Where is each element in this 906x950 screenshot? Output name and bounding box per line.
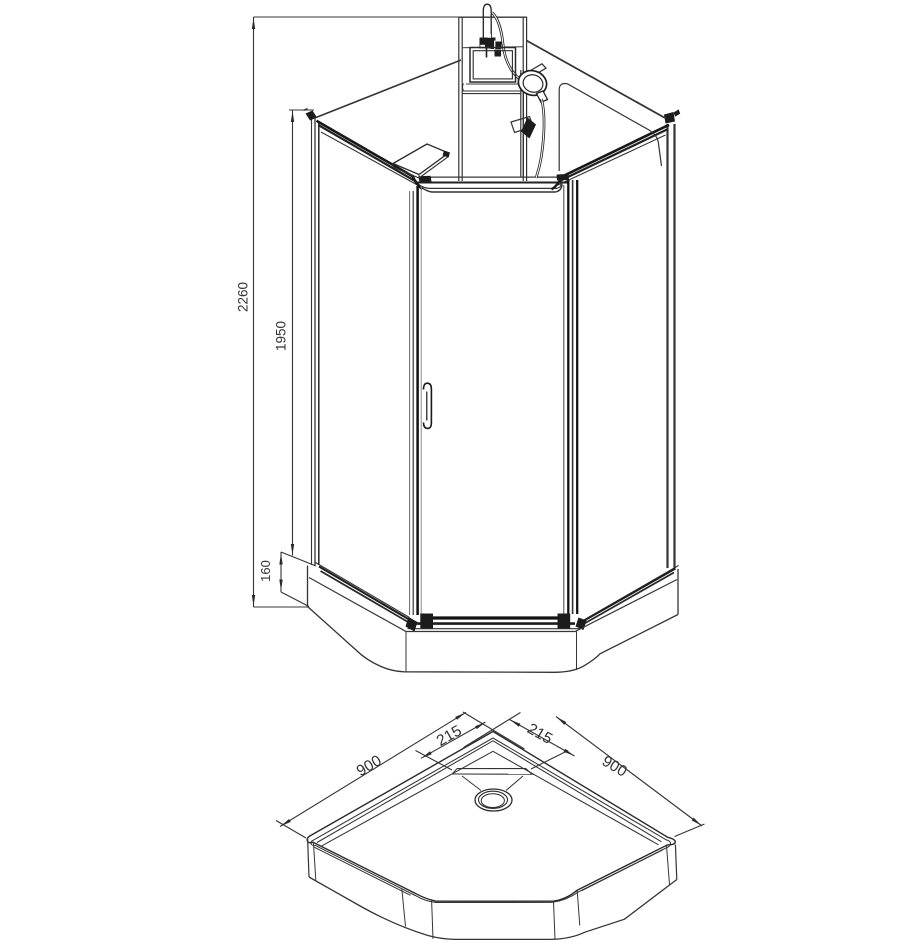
- svg-text:900: 900: [599, 753, 630, 781]
- svg-text:215: 215: [524, 720, 555, 748]
- svg-text:215: 215: [434, 722, 465, 750]
- svg-text:160: 160: [258, 560, 273, 582]
- svg-text:2260: 2260: [236, 282, 251, 312]
- svg-text:1950: 1950: [274, 321, 289, 351]
- svg-text:900: 900: [354, 752, 385, 780]
